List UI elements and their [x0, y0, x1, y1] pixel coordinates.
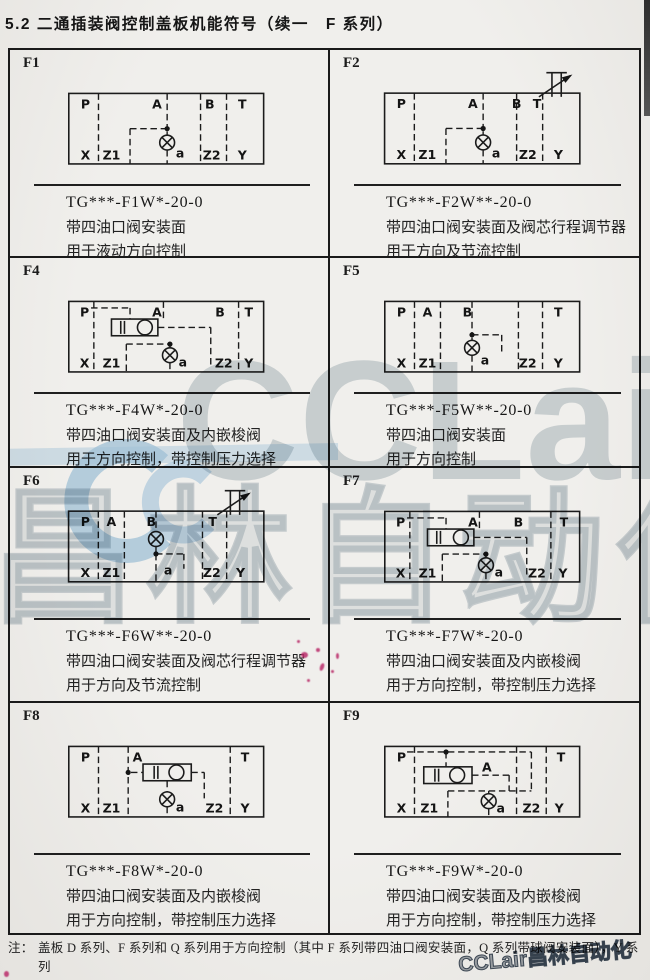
- port-label-Z1: Z1: [418, 565, 436, 580]
- shuttle-valve-icon: [423, 767, 471, 784]
- function-code: TG***-F7W*-20-0: [386, 627, 639, 648]
- port-label-A: A: [482, 759, 492, 774]
- port-label-Z2: Z2: [518, 147, 536, 162]
- port-label-Y: Y: [237, 147, 248, 162]
- ink-mark: [336, 653, 339, 659]
- ink-mark: [316, 648, 320, 652]
- port-label-Z1: Z1: [418, 147, 436, 162]
- ink-mark: [301, 652, 308, 658]
- description-line-1: 带四油口阀安装面及内嵌梭阀: [386, 886, 639, 909]
- schematic-diagram-f9: P A T X Z1 Z2 Y a: [379, 739, 591, 829]
- scan-edge-artifact: [644, 0, 650, 116]
- port-label-X: X: [396, 355, 406, 370]
- orifice-valve-a-icon: [149, 532, 164, 547]
- symbol-table: F1 P A B T: [8, 48, 641, 935]
- shuttle-valve-icon: [427, 529, 473, 546]
- port-label-B: B: [205, 96, 215, 111]
- port-label-P: P: [81, 96, 90, 111]
- port-label-X: X: [80, 355, 90, 370]
- cell-f2: F2: [330, 50, 639, 258]
- function-code: TG***-F6W**-20-0: [66, 627, 328, 648]
- port-label-T: T: [245, 304, 254, 319]
- junction-dot: [126, 770, 131, 775]
- pilot-lines: [131, 772, 204, 817]
- port-label-P: P: [81, 514, 90, 529]
- schematic-diagram-f2: P A B T X Z1 Z2 Y a: [379, 67, 591, 176]
- description-line-1: 带四油口阀安装面: [386, 425, 639, 448]
- description-line-2: 用于方向控制，带控制压力选择: [386, 675, 639, 698]
- port-label-a: a: [480, 353, 488, 368]
- diagram-wrap: P A B T X Z1 Z2 Y a: [10, 294, 328, 384]
- description-line-2: 用于液动方向控制: [66, 241, 328, 258]
- cell-label: F1: [23, 55, 328, 72]
- junction-dot: [153, 551, 158, 556]
- port-label-T: T: [208, 514, 217, 529]
- function-code: TG***-F8W*-20-0: [66, 862, 328, 883]
- shuttle-valve-icon: [111, 319, 157, 336]
- cell-label: F4: [23, 263, 328, 280]
- port-label-Y: Y: [553, 800, 564, 815]
- description-line-1: 带四油口阀安装面: [66, 217, 328, 240]
- description-line-1: 带四油口阀安装面及内嵌梭阀: [386, 651, 639, 674]
- separator-line: [354, 853, 621, 855]
- separator-line: [354, 184, 621, 186]
- port-label-X: X: [396, 147, 406, 162]
- schematic-diagram-f4: P A B T X Z1 Z2 Y a: [63, 294, 275, 384]
- port-label-a: a: [491, 145, 499, 160]
- orifice-valve-a-icon: [163, 348, 178, 363]
- diagram-wrap: P A B T X Z1 Z2 Y a: [330, 67, 639, 176]
- port-label-A: A: [422, 304, 432, 319]
- description-line-2: 用于方向及节流控制: [66, 675, 328, 698]
- junction-dot: [167, 342, 172, 347]
- cell-f1: F1 P A B T: [10, 50, 330, 258]
- function-code: TG***-F9W*-20-0: [386, 862, 639, 883]
- schematic-diagram-f7: P A B T X Z1 Z2 Y a: [379, 504, 591, 594]
- port-label-T: T: [532, 96, 541, 111]
- cell-f8: F8: [10, 703, 330, 933]
- port-label-B: B: [215, 304, 225, 319]
- port-label-Z1: Z1: [103, 800, 121, 815]
- port-label-T: T: [556, 749, 565, 764]
- port-label-T: T: [559, 514, 568, 529]
- schematic-diagram-f6: P A B T X Z1 Z2 Y a: [63, 485, 275, 594]
- port-label-T: T: [238, 96, 247, 111]
- diagram-wrap: P A B T X Z1 Z2 Y a: [10, 86, 328, 176]
- port-label-A: A: [152, 96, 162, 111]
- junction-dot: [483, 552, 488, 557]
- port-label-Z1: Z1: [418, 355, 436, 370]
- cell-f5: F5 P A B T: [330, 258, 639, 468]
- port-label-X: X: [81, 800, 91, 815]
- function-code: TG***-F1W*-20-0: [66, 193, 328, 214]
- port-label-Z2: Z2: [528, 565, 546, 580]
- port-label-T: T: [241, 749, 250, 764]
- description-line-2: 用于方向控制: [386, 449, 639, 468]
- port-label-P: P: [80, 304, 89, 319]
- cell-f7: F7: [330, 468, 639, 703]
- diagram-wrap: P A B T X Z1 Z2 Y a: [330, 294, 639, 384]
- orifice-valve-a-icon: [464, 340, 479, 355]
- description-line-1: 带四油口阀安装面及阀芯行程调节器: [386, 217, 639, 240]
- port-label-Z1: Z1: [103, 147, 121, 162]
- port-label-Y: Y: [235, 565, 246, 580]
- port-label-B: B: [462, 304, 472, 319]
- cell-label: F5: [343, 263, 639, 280]
- port-label-X: X: [395, 565, 405, 580]
- port-label-X: X: [80, 565, 90, 580]
- port-label-T: T: [554, 304, 563, 319]
- port-label-Z2: Z2: [518, 355, 536, 370]
- port-label-Z2: Z2: [203, 565, 221, 580]
- orifice-valve-a-icon: [475, 135, 490, 150]
- junction-dot: [443, 749, 448, 754]
- cell-label: F7: [343, 473, 639, 490]
- function-code: TG***-F4W*-20-0: [66, 401, 328, 422]
- port-label-Z2: Z2: [522, 800, 540, 815]
- diagram-wrap: P A B T X Z1 Z2 Y a: [10, 485, 328, 594]
- junction-dot: [469, 332, 474, 337]
- port-label-a: a: [176, 799, 184, 814]
- footnote: 注： 盖板 D 系列、F 系列和 Q 系列用于方向控制（其中 F 系列带四油口阀…: [8, 939, 644, 980]
- separator-line: [34, 184, 310, 186]
- diagram-wrap: P A T X Z1 Z2 Y a: [10, 739, 328, 829]
- orifice-valve-a-icon: [160, 135, 175, 150]
- port-label-Z1: Z1: [420, 800, 438, 815]
- port-label-Y: Y: [552, 147, 563, 162]
- orifice-valve-a-icon: [478, 558, 493, 573]
- port-label-Y: Y: [243, 355, 254, 370]
- scanned-document-page: 5.2 二通插装阀控制盖板机能符号（续一 F 系列） F1: [0, 0, 650, 980]
- port-label-A: A: [106, 514, 116, 529]
- separator-line: [34, 618, 310, 620]
- diagram-wrap: P A B T X Z1 Z2 Y a: [330, 504, 639, 594]
- schematic-diagram-f5: P A B T X Z1 Z2 Y a: [379, 294, 591, 384]
- cell-f6: F6: [10, 468, 330, 703]
- port-label-Z2: Z2: [206, 800, 224, 815]
- port-label-A: A: [468, 96, 478, 111]
- port-label-Y: Y: [240, 800, 251, 815]
- port-label-Y: Y: [557, 565, 568, 580]
- orifice-valve-a-icon: [160, 792, 175, 807]
- ink-mark: [4, 971, 9, 977]
- port-label-X: X: [81, 147, 91, 162]
- port-label-Z2: Z2: [215, 355, 233, 370]
- junction-dot: [165, 126, 170, 131]
- port-label-P: P: [81, 749, 90, 764]
- separator-line: [354, 392, 621, 394]
- port-label-P: P: [396, 304, 405, 319]
- port-label-B: B: [147, 514, 157, 529]
- cell-label: F8: [23, 708, 328, 725]
- ink-mark: [297, 640, 300, 643]
- diagram-wrap: P A T X Z1 Z2 Y a: [330, 739, 639, 829]
- port-label-a: a: [179, 354, 187, 369]
- port-label-B: B: [513, 514, 523, 529]
- port-label-a: a: [494, 564, 502, 579]
- shuttle-valve-icon: [143, 764, 191, 781]
- port-label-a: a: [164, 562, 172, 577]
- ink-mark: [307, 679, 310, 682]
- port-label-Y: Y: [552, 355, 563, 370]
- port-label-P: P: [395, 514, 404, 529]
- function-code: TG***-F5W**-20-0: [386, 401, 639, 422]
- schematic-diagram-f8: P A T X Z1 Z2 Y a: [63, 739, 275, 829]
- separator-line: [354, 618, 621, 620]
- cell-f4: F4: [10, 258, 330, 468]
- port-label-a: a: [176, 145, 184, 160]
- port-label-Z2: Z2: [203, 147, 221, 162]
- cell-label: F9: [343, 708, 639, 725]
- port-label-Z1: Z1: [102, 565, 120, 580]
- footnote-label: 注：: [8, 939, 38, 978]
- port-label-Z1: Z1: [103, 355, 121, 370]
- description-line-2: 用于方向控制，带控制压力选择: [66, 449, 328, 468]
- separator-line: [34, 853, 310, 855]
- port-label-P: P: [396, 749, 405, 764]
- description-line-2: 用于方向控制，带控制压力选择: [66, 910, 328, 933]
- description-line-1: 带四油口阀安装面及内嵌梭阀: [66, 886, 328, 909]
- description-line-1: 带四油口阀安装面及内嵌梭阀: [66, 425, 328, 448]
- schematic-diagram-f1: P A B T X Z1 Z2 Y a: [63, 86, 275, 176]
- cell-f9: F9: [330, 703, 639, 933]
- footnote-line-1: 盖板 D 系列、F 系列和 Q 系列用于方向控制（其中 F 系列带四油口阀安装面…: [38, 939, 644, 978]
- separator-line: [34, 392, 310, 394]
- port-label-A: A: [468, 514, 478, 529]
- description-line-2: 用于方向控制，带控制压力选择: [386, 910, 639, 933]
- function-code: TG***-F2W**-20-0: [386, 193, 639, 214]
- page-title: 5.2 二通插装阀控制盖板机能符号（续一 F 系列）: [5, 12, 625, 34]
- ink-mark: [331, 670, 334, 673]
- port-label-A: A: [133, 749, 143, 764]
- port-label-a: a: [496, 800, 504, 815]
- port-label-B: B: [511, 96, 521, 111]
- port-label-X: X: [396, 800, 406, 815]
- port-label-A: A: [152, 304, 162, 319]
- junction-dot: [480, 126, 485, 131]
- description-line-2: 用于方向及节流控制: [386, 241, 639, 258]
- orifice-valve-a-icon: [481, 794, 496, 809]
- description-line-1: 带四油口阀安装面及阀芯行程调节器: [66, 651, 328, 674]
- port-label-P: P: [396, 96, 405, 111]
